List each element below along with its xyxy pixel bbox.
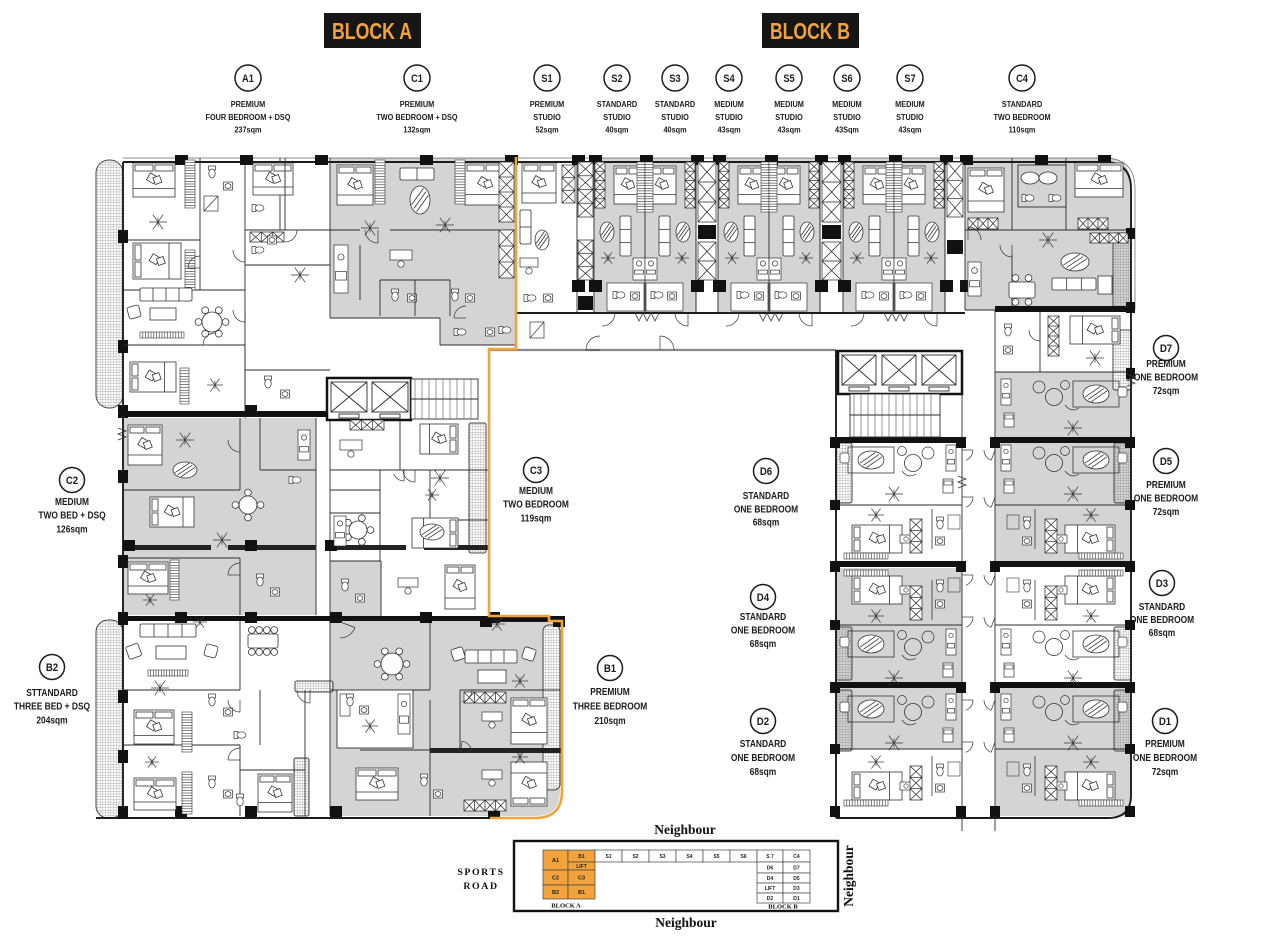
svg-text:MEDIUM: MEDIUM [519,485,553,496]
svg-text:D5: D5 [793,876,800,882]
svg-text:52sqm: 52sqm [535,125,558,135]
svg-text:FOUR BEDROOM + DSQ: FOUR BEDROOM + DSQ [206,112,291,122]
svg-text:72sqm: 72sqm [1152,766,1179,777]
svg-text:TWO BEDROOM: TWO BEDROOM [993,112,1050,122]
svg-text:STANDARD: STANDARD [1139,601,1186,612]
svg-text:S5: S5 [713,854,719,860]
svg-text:C2: C2 [66,474,78,487]
svg-text:PREMIUM: PREMIUM [1146,358,1186,369]
svg-text:C1: C1 [411,73,423,85]
svg-text:STUDIO: STUDIO [603,112,631,122]
svg-text:STUDIO: STUDIO [896,112,924,122]
svg-text:ONE BEDROOM: ONE BEDROOM [1134,372,1199,383]
svg-text:D3: D3 [1156,577,1168,590]
svg-text:S3: S3 [659,854,665,860]
svg-text:ONE BEDROOM: ONE BEDROOM [731,625,796,636]
svg-text:119sqm: 119sqm [521,513,552,524]
svg-text:40sqm: 40sqm [663,125,686,135]
svg-text:STUDIO: STUDIO [533,112,561,122]
svg-text:110sqm: 110sqm [1009,125,1036,135]
svg-text:S5: S5 [783,73,795,85]
svg-text:SPORTS: SPORTS [457,867,504,878]
svg-text:D3: D3 [793,886,800,892]
svg-text:D2: D2 [767,896,774,902]
svg-text:B2: B2 [552,890,559,896]
svg-text:B1: B1 [578,890,585,896]
svg-text:D5: D5 [1160,455,1172,468]
svg-text:D4: D4 [757,591,769,604]
svg-text:S2: S2 [611,73,623,85]
svg-text:MEDIUM: MEDIUM [714,99,744,109]
svg-text:D2: D2 [757,715,769,728]
svg-text:68sqm: 68sqm [1149,627,1176,638]
svg-text:D1: D1 [1159,715,1171,728]
svg-text:204sqm: 204sqm [36,715,67,726]
svg-text:ROAD: ROAD [463,881,498,892]
svg-text:D7: D7 [793,865,800,871]
svg-text:S4: S4 [686,854,692,860]
svg-text:BLOCK A: BLOCK A [332,18,412,44]
svg-text:68sqm: 68sqm [750,638,777,649]
svg-text:C4: C4 [1016,73,1028,85]
svg-text:S1: S1 [541,73,553,85]
svg-text:237sqm: 237sqm [234,125,261,135]
svg-text:43sqm: 43sqm [717,125,740,135]
svg-text:PREMIUM: PREMIUM [1146,479,1186,490]
svg-text:S6: S6 [841,73,853,85]
svg-text:STUDIO: STUDIO [775,112,803,122]
svg-text:ONE BEDROOM: ONE BEDROOM [1130,614,1195,625]
svg-text:PREMIUM: PREMIUM [530,99,565,109]
svg-text:43sqm: 43sqm [777,125,800,135]
svg-text:C3: C3 [530,464,542,477]
svg-text:B1: B1 [604,662,616,675]
svg-text:A1: A1 [552,858,559,864]
svg-text:72sqm: 72sqm [1153,506,1180,517]
svg-text:PREMIUM: PREMIUM [231,99,266,109]
svg-text:43sqm: 43sqm [898,125,921,135]
svg-text:STUDIO: STUDIO [661,112,689,122]
svg-text:TWO BEDROOM: TWO BEDROOM [503,499,569,510]
svg-text:S4: S4 [723,73,735,85]
svg-text:PREMIUM: PREMIUM [400,99,435,109]
svg-text:PREMIUM: PREMIUM [1145,738,1185,749]
svg-text:PREMIUM: PREMIUM [590,686,630,697]
svg-text:D7: D7 [1160,342,1172,355]
svg-text:210sqm: 210sqm [594,715,625,726]
svg-text:THREE BED + DSQ: THREE BED + DSQ [14,701,90,712]
svg-text:Neighbour: Neighbour [655,915,717,930]
svg-text:STANDARD: STANDARD [655,99,696,109]
svg-text:STANDARD: STANDARD [740,738,787,749]
svg-text:MEDIUM: MEDIUM [832,99,862,109]
svg-text:BLOCK A: BLOCK A [551,903,581,910]
svg-text:132sqm: 132sqm [403,125,430,135]
svg-text:D1: D1 [793,896,800,902]
svg-text:40sqm: 40sqm [605,125,628,135]
svg-text:ONE BEDROOM: ONE BEDROOM [734,504,799,515]
svg-text:S2: S2 [632,854,638,860]
svg-text:S3: S3 [669,73,681,85]
svg-text:C3: C3 [578,875,585,881]
svg-text:STANDARD: STANDARD [1002,99,1043,109]
svg-text:S6: S6 [740,854,746,860]
svg-text:STANDARD: STANDARD [743,490,790,501]
svg-text:BLOCK B: BLOCK B [770,18,850,44]
svg-text:68sqm: 68sqm [753,517,780,528]
svg-text:STANDARD: STANDARD [597,99,638,109]
svg-text:STUDIO: STUDIO [715,112,743,122]
svg-text:A1: A1 [242,73,254,85]
svg-text:Neighbour: Neighbour [841,845,856,907]
svg-text:LIFT: LIFT [765,886,776,892]
svg-text:THREE BEDROOM: THREE BEDROOM [573,701,648,712]
svg-text:S1: S1 [605,854,611,860]
svg-text:ONE BEDROOM: ONE BEDROOM [731,752,796,763]
svg-text:MEDIUM: MEDIUM [895,99,925,109]
svg-text:STANDARD: STANDARD [740,611,787,622]
svg-text:B1: B1 [578,854,585,860]
svg-text:C4: C4 [793,854,800,860]
svg-text:TWO BED + DSQ: TWO BED + DSQ [38,510,105,521]
svg-text:43Sqm: 43Sqm [835,125,859,135]
svg-text:LIFT: LIFT [576,864,587,870]
svg-text:Neighbour: Neighbour [654,822,716,837]
svg-text:ONE BEDROOM: ONE BEDROOM [1134,493,1199,504]
svg-text:68sqm: 68sqm [750,766,777,777]
svg-text:BLOCK B: BLOCK B [768,904,798,911]
svg-text:72sqm: 72sqm [1153,385,1180,396]
svg-text:S 7: S 7 [766,854,774,860]
svg-text:S7: S7 [904,73,916,85]
svg-text:STTANDARD: STTANDARD [26,687,78,698]
svg-text:ONE BEDROOM: ONE BEDROOM [1133,752,1198,763]
svg-text:MEDIUM: MEDIUM [774,99,804,109]
svg-text:D4: D4 [767,876,774,882]
svg-text:B2: B2 [46,661,58,674]
svg-text:D6: D6 [760,465,772,478]
svg-text:TWO BEDROOM + DSQ: TWO BEDROOM + DSQ [376,112,457,122]
svg-text:C2: C2 [552,875,559,881]
svg-text:STUDIO: STUDIO [833,112,861,122]
svg-text:D6: D6 [767,865,774,871]
svg-text:126sqm: 126sqm [56,524,87,535]
svg-text:MEDIUM: MEDIUM [55,496,89,507]
